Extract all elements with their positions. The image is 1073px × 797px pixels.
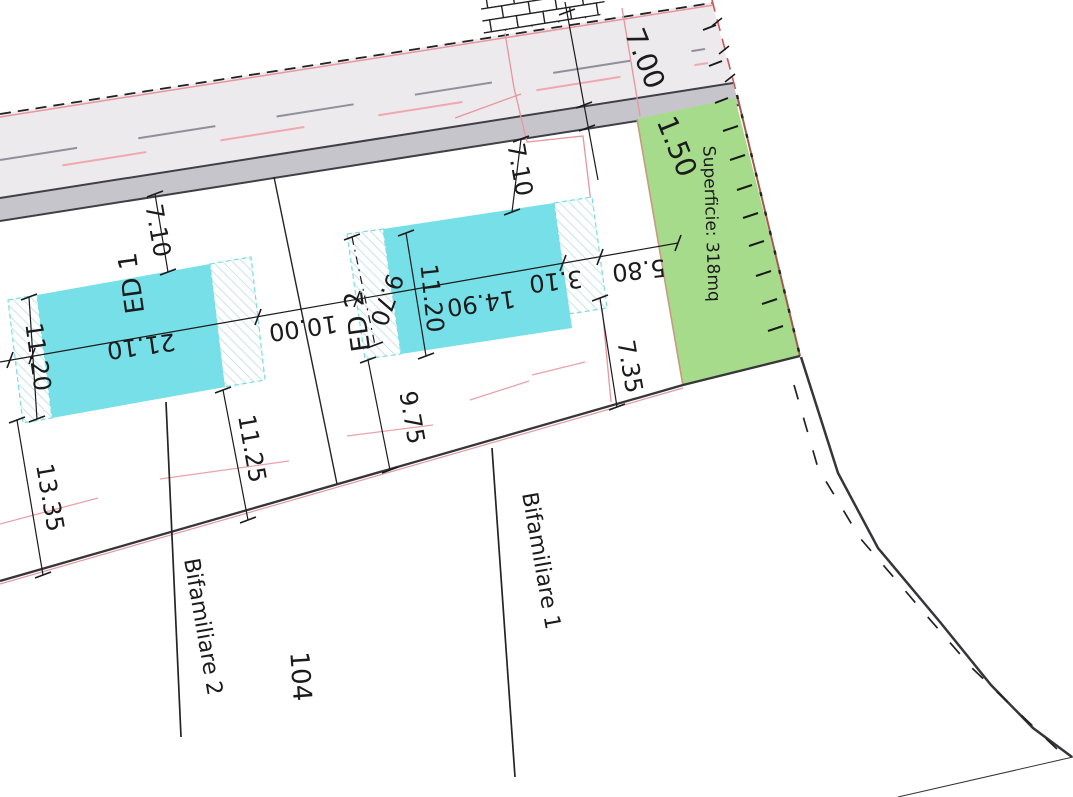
division-line-bifamiliare2 — [166, 402, 181, 737]
right-boundary — [801, 357, 1072, 757]
dim-pink-to-green: 5.80 — [611, 253, 667, 286]
dim-green-to-boundary: 7.35 — [611, 338, 648, 395]
dim-gap-ed1-ed2: 10.00 — [267, 309, 339, 346]
division-line-bifamiliare1 — [492, 448, 515, 777]
right-boundary-inner-dashed — [794, 385, 1058, 750]
dim-ed2-side-offset: 9.75 — [393, 389, 430, 446]
label-bifamiliare1: Bifamiliare 1 — [516, 490, 565, 631]
site-plan-drawing: Superficie: 318mq — [0, 0, 1073, 797]
dim-gap-road-ed2: 7.10 — [501, 141, 538, 198]
label-bifamiliare2: Bifamiliare 2 — [178, 556, 227, 697]
site-plan: Superficie: 318mq — [0, 0, 1073, 797]
dim-gap-road-ed1: 7.10 — [139, 202, 176, 259]
lower-boundary-pink — [0, 388, 683, 584]
dim-to-boundary-left: 13.35 — [30, 461, 70, 534]
bottom-right-line — [898, 757, 1073, 797]
label-parcel-104: 104 — [283, 651, 316, 703]
dim-ed2-to-pink: 3.10 — [528, 264, 584, 297]
dim-to-boundary-right: 11.25 — [232, 412, 272, 485]
